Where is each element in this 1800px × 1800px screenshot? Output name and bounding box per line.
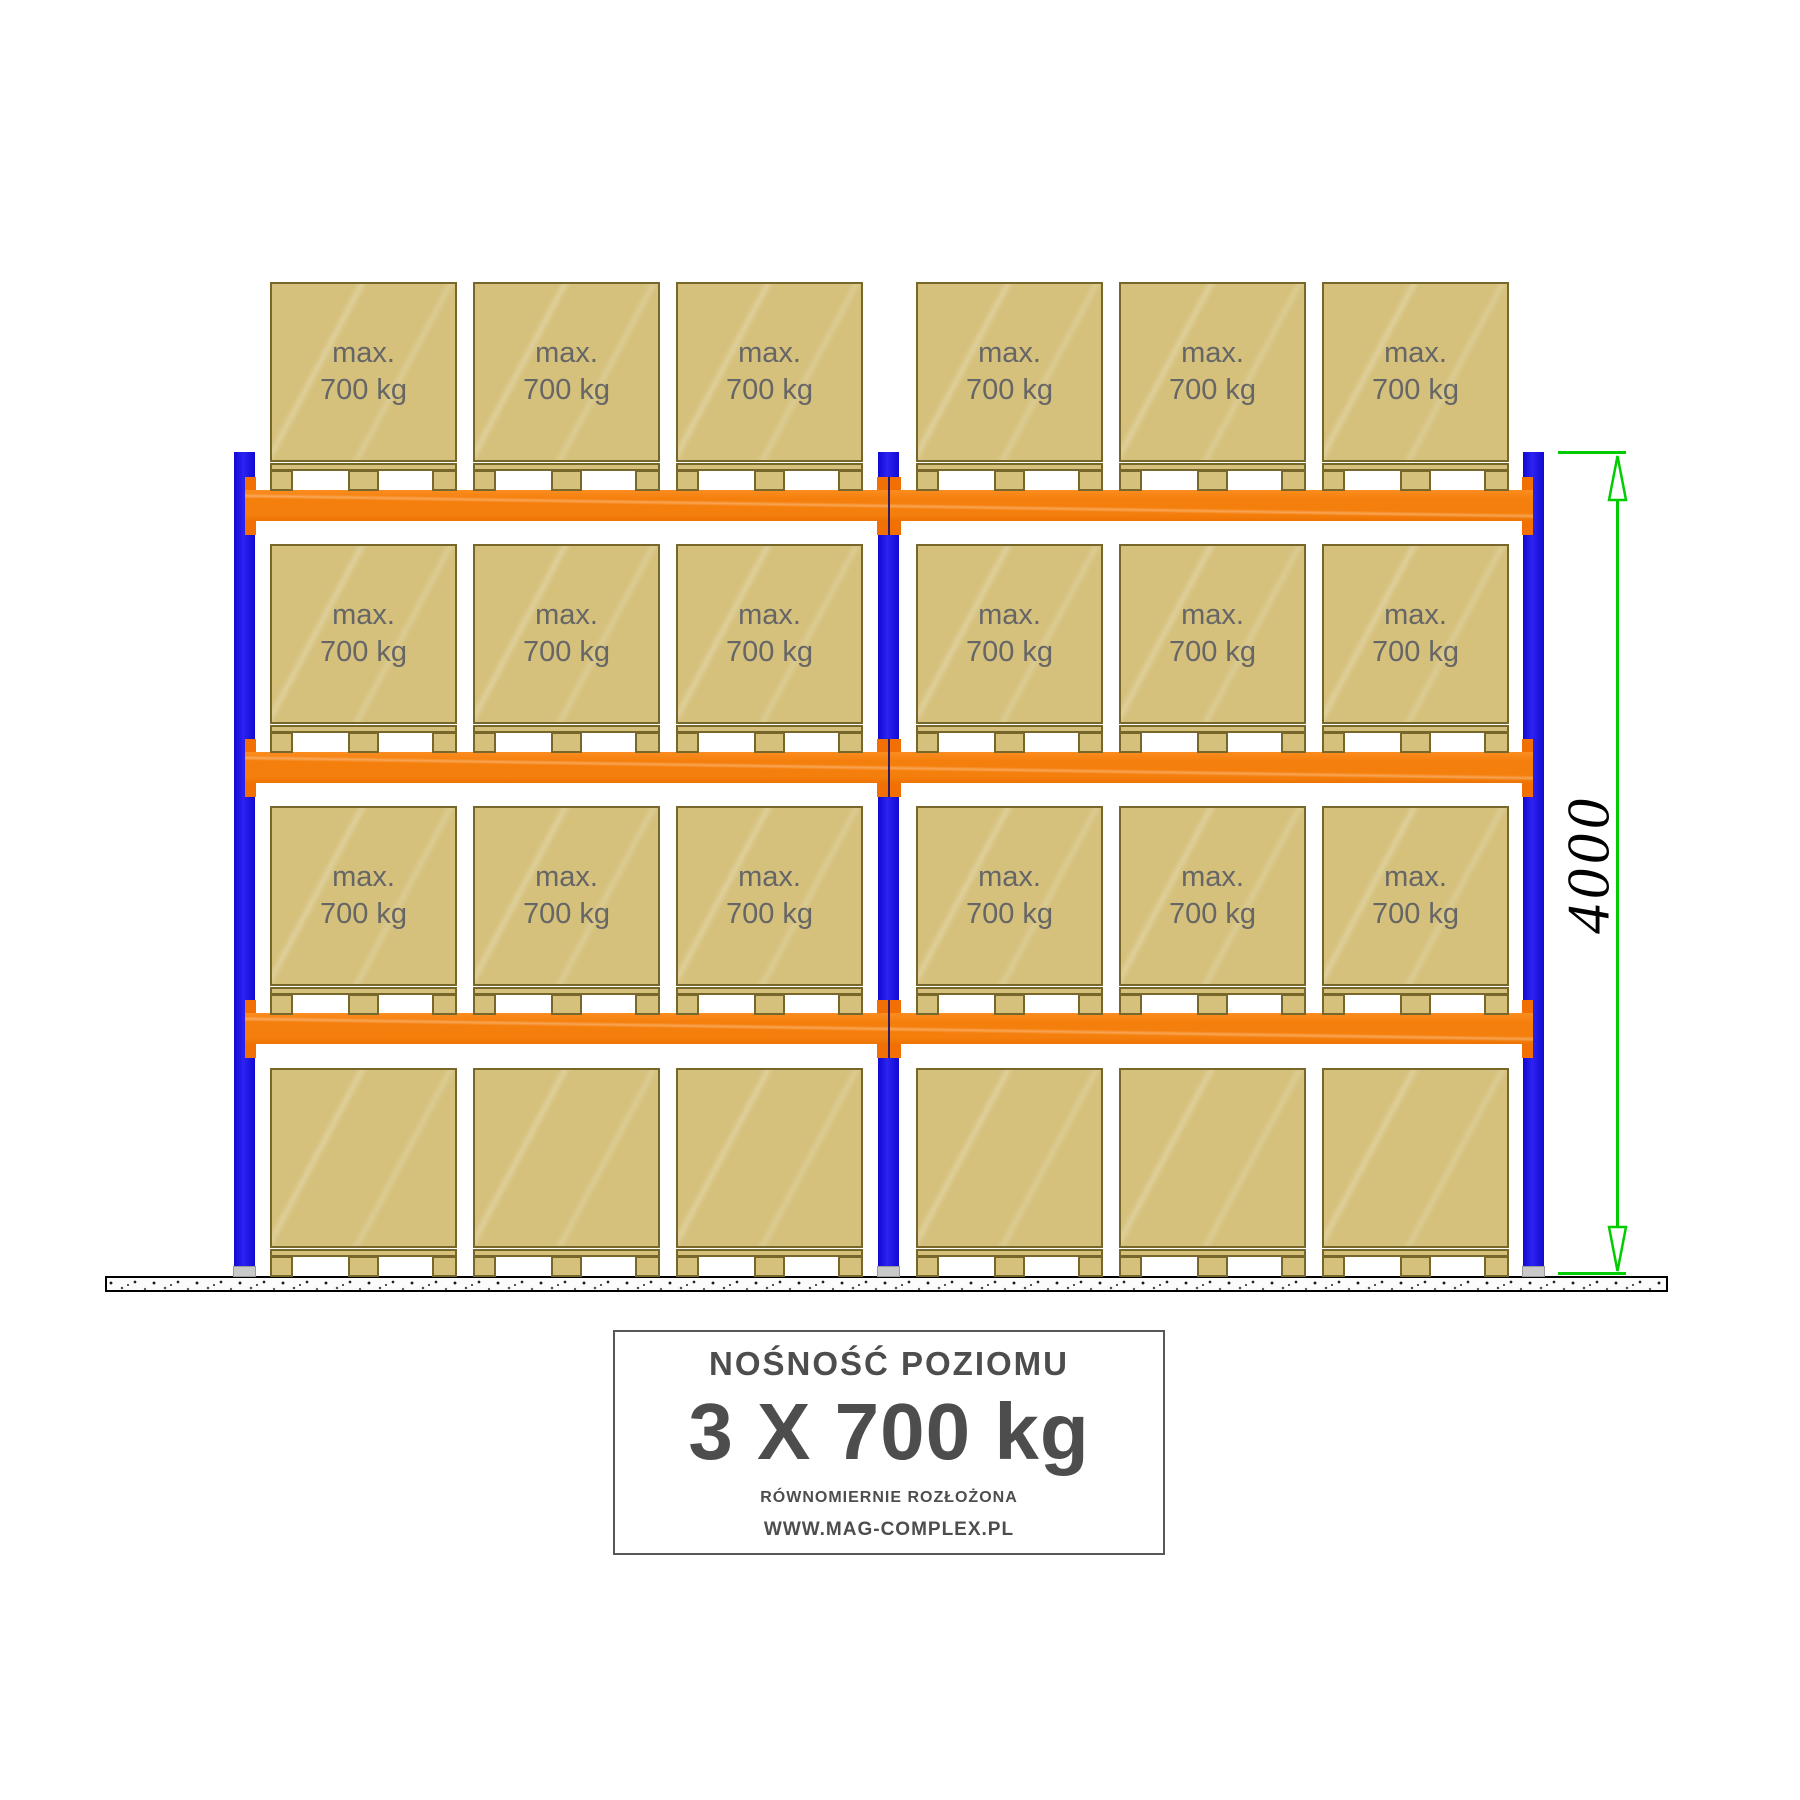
box-max-label: max. bbox=[1181, 335, 1244, 372]
pallet-block bbox=[635, 994, 660, 1015]
pallet-load-box: max.700 kg bbox=[473, 282, 660, 462]
pallet-block bbox=[916, 994, 939, 1015]
pallet-block bbox=[754, 994, 785, 1015]
pallet-block bbox=[1281, 470, 1306, 491]
box-max-label: max. bbox=[332, 597, 395, 634]
pallet-load-box: max.700 kg bbox=[1119, 282, 1306, 462]
pallet-block bbox=[551, 1256, 582, 1277]
pallet-block bbox=[676, 470, 699, 491]
box-weight-label: 700 kg bbox=[1372, 634, 1459, 671]
pallet-load-box: max.700 kg bbox=[1322, 544, 1509, 724]
pallet-load-box bbox=[473, 1068, 660, 1248]
pallet-block bbox=[994, 1256, 1025, 1277]
info-box-capacity-value: 3 X 700 kg bbox=[688, 1390, 1089, 1474]
pallet-block bbox=[432, 732, 457, 753]
pallet-block bbox=[1484, 994, 1509, 1015]
box-max-label: max. bbox=[978, 597, 1041, 634]
box-max-label: max. bbox=[1181, 597, 1244, 634]
box-max-label: max. bbox=[1384, 859, 1447, 896]
pallet-load-box: max.700 kg bbox=[676, 806, 863, 986]
pallet-block bbox=[754, 1256, 785, 1277]
pallet-block bbox=[473, 732, 496, 753]
pallet-block bbox=[994, 994, 1025, 1015]
pallet-block bbox=[1078, 994, 1103, 1015]
box-weight-label: 700 kg bbox=[523, 372, 610, 409]
pallet-block bbox=[635, 1256, 660, 1277]
box-max-label: max. bbox=[978, 335, 1041, 372]
box-max-label: max. bbox=[332, 335, 395, 372]
pallet-block bbox=[348, 994, 379, 1015]
pallet-block bbox=[1197, 994, 1228, 1015]
pallet-block bbox=[1197, 470, 1228, 491]
pallet-block bbox=[635, 470, 660, 491]
box-max-label: max. bbox=[738, 859, 801, 896]
pallet-block bbox=[1322, 470, 1345, 491]
box-weight-label: 700 kg bbox=[726, 634, 813, 671]
pallet-block bbox=[676, 994, 699, 1015]
box-weight-label: 700 kg bbox=[966, 896, 1053, 933]
pallet-block bbox=[1322, 1256, 1345, 1277]
pallet-block bbox=[916, 470, 939, 491]
box-weight-label: 700 kg bbox=[1169, 896, 1256, 933]
pallet-block bbox=[551, 732, 582, 753]
pallet-load-box: max.700 kg bbox=[1119, 806, 1306, 986]
box-weight-label: 700 kg bbox=[523, 634, 610, 671]
pallet-block bbox=[838, 1256, 863, 1277]
pallet-block bbox=[348, 732, 379, 753]
info-box-title: NOŚNOŚĆ POZIOMU bbox=[709, 1346, 1069, 1382]
pallet-block bbox=[1119, 994, 1142, 1015]
pallet-load-box: max.700 kg bbox=[676, 544, 863, 724]
load-capacity-info-box: NOŚNOŚĆ POZIOMU 3 X 700 kg RÓWNOMIERNIE … bbox=[613, 1330, 1165, 1555]
pallet-block bbox=[838, 470, 863, 491]
pallet-load-box: max.700 kg bbox=[1119, 544, 1306, 724]
info-box-website: WWW.MAG-COMPLEX.PL bbox=[764, 1516, 1014, 1544]
pallet-block bbox=[1400, 732, 1431, 753]
box-weight-label: 700 kg bbox=[1169, 372, 1256, 409]
pallet-block bbox=[994, 470, 1025, 491]
pallet-load-box: max.700 kg bbox=[916, 544, 1103, 724]
box-max-label: max. bbox=[332, 859, 395, 896]
pallet-load-box bbox=[1119, 1068, 1306, 1248]
info-box-distribution-note: RÓWNOMIERNIE ROZŁOŻONA bbox=[760, 1486, 1018, 1510]
pallet-load-box bbox=[270, 1068, 457, 1248]
box-weight-label: 700 kg bbox=[966, 634, 1053, 671]
pallet-block bbox=[432, 470, 457, 491]
box-weight-label: 700 kg bbox=[1372, 896, 1459, 933]
pallet-block bbox=[551, 470, 582, 491]
pallet-load-box: max.700 kg bbox=[270, 806, 457, 986]
pallet-block bbox=[635, 732, 660, 753]
pallet-load-box: max.700 kg bbox=[473, 544, 660, 724]
pallet-block bbox=[994, 732, 1025, 753]
pallet-block bbox=[676, 732, 699, 753]
pallet-block bbox=[916, 1256, 939, 1277]
box-weight-label: 700 kg bbox=[1169, 634, 1256, 671]
pallet-block bbox=[1078, 470, 1103, 491]
pallet-block bbox=[1322, 732, 1345, 753]
pallet-load-box: max.700 kg bbox=[916, 282, 1103, 462]
pallet-load-box bbox=[676, 1068, 863, 1248]
box-weight-label: 700 kg bbox=[320, 634, 407, 671]
pallet-load-box: max.700 kg bbox=[1322, 806, 1509, 986]
pallet-block bbox=[1400, 1256, 1431, 1277]
pallet-block bbox=[1281, 994, 1306, 1015]
pallet-block bbox=[1197, 732, 1228, 753]
pallet-block bbox=[754, 470, 785, 491]
pallet-load-box: max.700 kg bbox=[473, 806, 660, 986]
pallet-block bbox=[1484, 1256, 1509, 1277]
pallet-block bbox=[916, 732, 939, 753]
pallet-load-box: max.700 kg bbox=[270, 282, 457, 462]
pallet-block bbox=[270, 994, 293, 1015]
pallet-block bbox=[473, 470, 496, 491]
box-max-label: max. bbox=[738, 597, 801, 634]
pallet-block bbox=[551, 994, 582, 1015]
pallet-block bbox=[270, 470, 293, 491]
box-weight-label: 700 kg bbox=[523, 896, 610, 933]
pallet-block bbox=[1119, 1256, 1142, 1277]
pallet-block bbox=[270, 732, 293, 753]
pallet-block bbox=[1078, 732, 1103, 753]
box-max-label: max. bbox=[738, 335, 801, 372]
pallet-load-box: max.700 kg bbox=[1322, 282, 1509, 462]
box-weight-label: 700 kg bbox=[726, 372, 813, 409]
pallet-block bbox=[1484, 470, 1509, 491]
dimension-value-label: 4000 bbox=[1555, 794, 1624, 934]
pallet-block bbox=[1078, 1256, 1103, 1277]
pallet-block bbox=[1322, 994, 1345, 1015]
pallet-block bbox=[473, 994, 496, 1015]
box-weight-label: 700 kg bbox=[320, 372, 407, 409]
box-max-label: max. bbox=[978, 859, 1041, 896]
pallet-block bbox=[432, 1256, 457, 1277]
box-weight-label: 700 kg bbox=[1372, 372, 1459, 409]
pallet-block bbox=[1119, 732, 1142, 753]
box-weight-label: 700 kg bbox=[320, 896, 407, 933]
pallet-load-box bbox=[1322, 1068, 1509, 1248]
box-max-label: max. bbox=[1384, 335, 1447, 372]
box-weight-label: 700 kg bbox=[726, 896, 813, 933]
box-max-label: max. bbox=[535, 335, 598, 372]
pallet-block bbox=[432, 994, 457, 1015]
pallet-load-box: max.700 kg bbox=[270, 544, 457, 724]
pallet-load-box bbox=[916, 1068, 1103, 1248]
pallet-block bbox=[1197, 1256, 1228, 1277]
pallet-block bbox=[1119, 470, 1142, 491]
box-max-label: max. bbox=[535, 859, 598, 896]
pallet-block bbox=[1281, 732, 1306, 753]
pallet-block bbox=[754, 732, 785, 753]
box-max-label: max. bbox=[535, 597, 598, 634]
box-max-label: max. bbox=[1384, 597, 1447, 634]
box-weight-label: 700 kg bbox=[966, 372, 1053, 409]
pallet-rack-diagram: max.700 kgmax.700 kgmax.700 kgmax.700 kg… bbox=[0, 0, 1800, 1800]
pallet-block bbox=[676, 1256, 699, 1277]
pallet-block bbox=[1484, 732, 1509, 753]
pallet-block bbox=[1400, 994, 1431, 1015]
pallet-block bbox=[1281, 1256, 1306, 1277]
pallet-block bbox=[348, 1256, 379, 1277]
pallet-block bbox=[473, 1256, 496, 1277]
pallet-block bbox=[838, 994, 863, 1015]
pallet-load-box: max.700 kg bbox=[916, 806, 1103, 986]
pallet-block bbox=[838, 732, 863, 753]
pallet-block bbox=[1400, 470, 1431, 491]
box-max-label: max. bbox=[1181, 859, 1244, 896]
pallet-block bbox=[270, 1256, 293, 1277]
pallet-load-box: max.700 kg bbox=[676, 282, 863, 462]
pallet-block bbox=[348, 470, 379, 491]
